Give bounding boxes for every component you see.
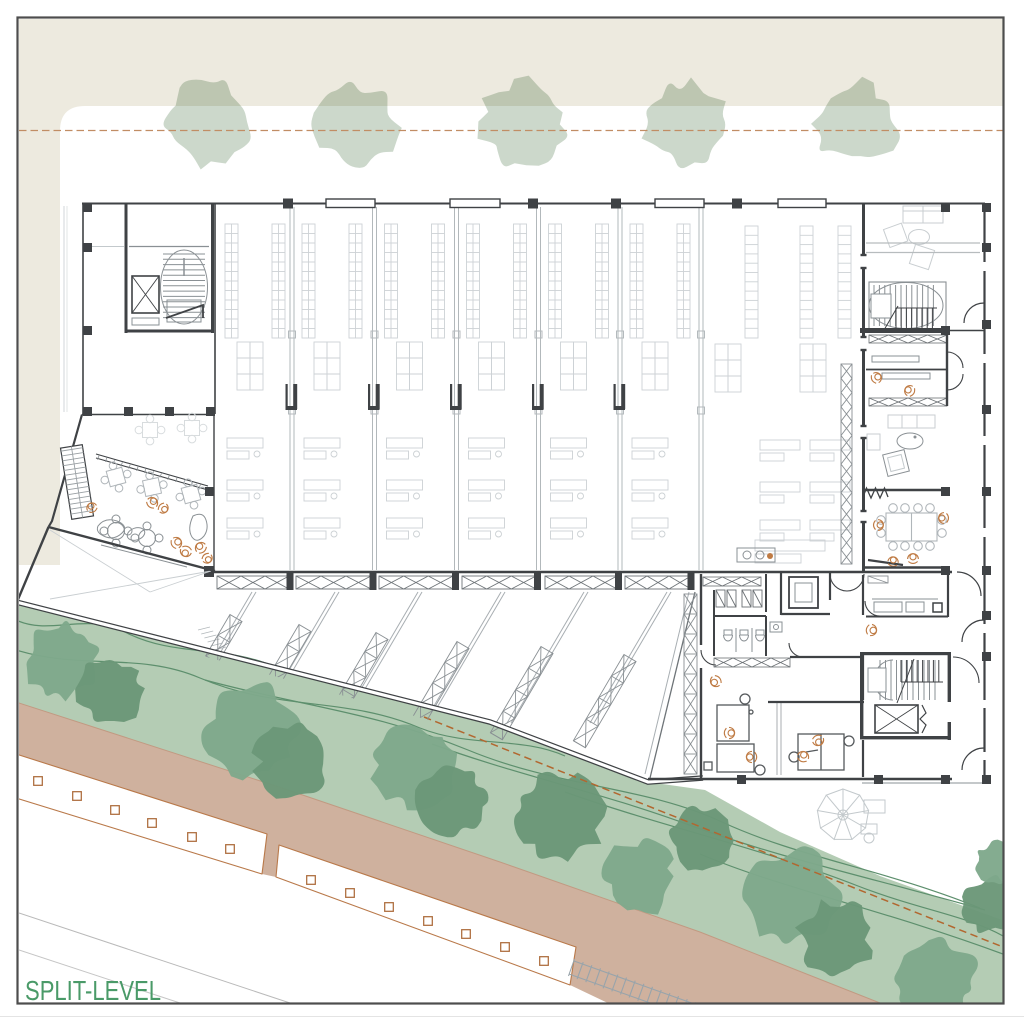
svg-text:SPLIT-LEVEL: SPLIT-LEVEL	[25, 975, 161, 1006]
